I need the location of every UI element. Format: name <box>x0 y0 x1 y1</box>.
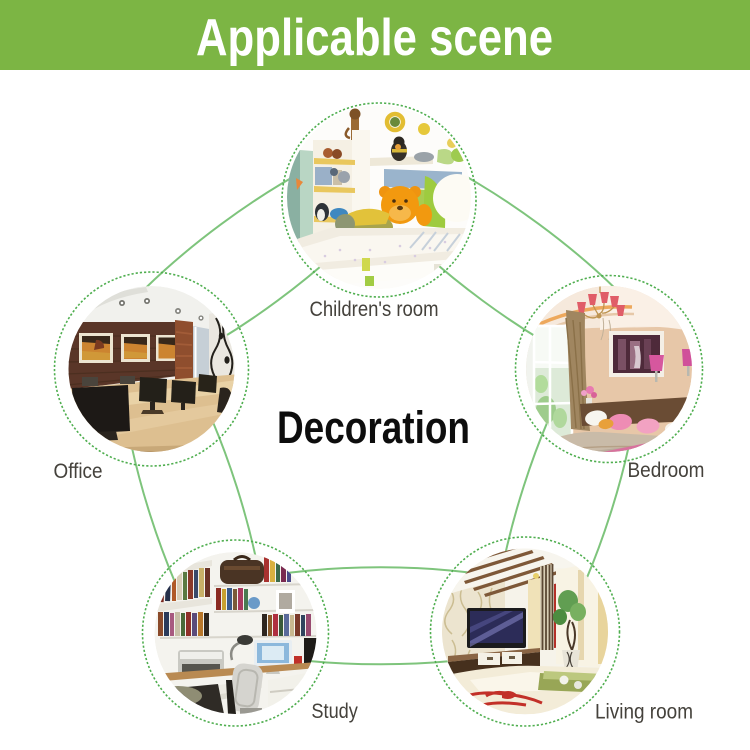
svg-text:Decoration: Decoration <box>277 402 470 453</box>
svg-text:Study: Study <box>311 700 358 723</box>
svg-text:Applicable scene: Applicable scene <box>196 9 553 67</box>
svg-text:Office: Office <box>54 460 103 483</box>
svg-text:Children's room: Children's room <box>310 298 439 321</box>
svg-text:Living room: Living room <box>595 701 693 724</box>
svg-text:Bedroom: Bedroom <box>628 459 705 482</box>
